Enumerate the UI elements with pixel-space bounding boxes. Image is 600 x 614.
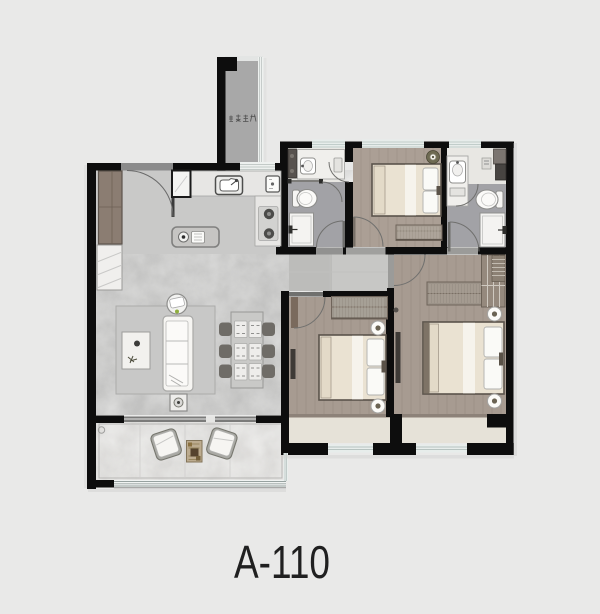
svg-text:A-110: A-110 xyxy=(234,536,330,588)
